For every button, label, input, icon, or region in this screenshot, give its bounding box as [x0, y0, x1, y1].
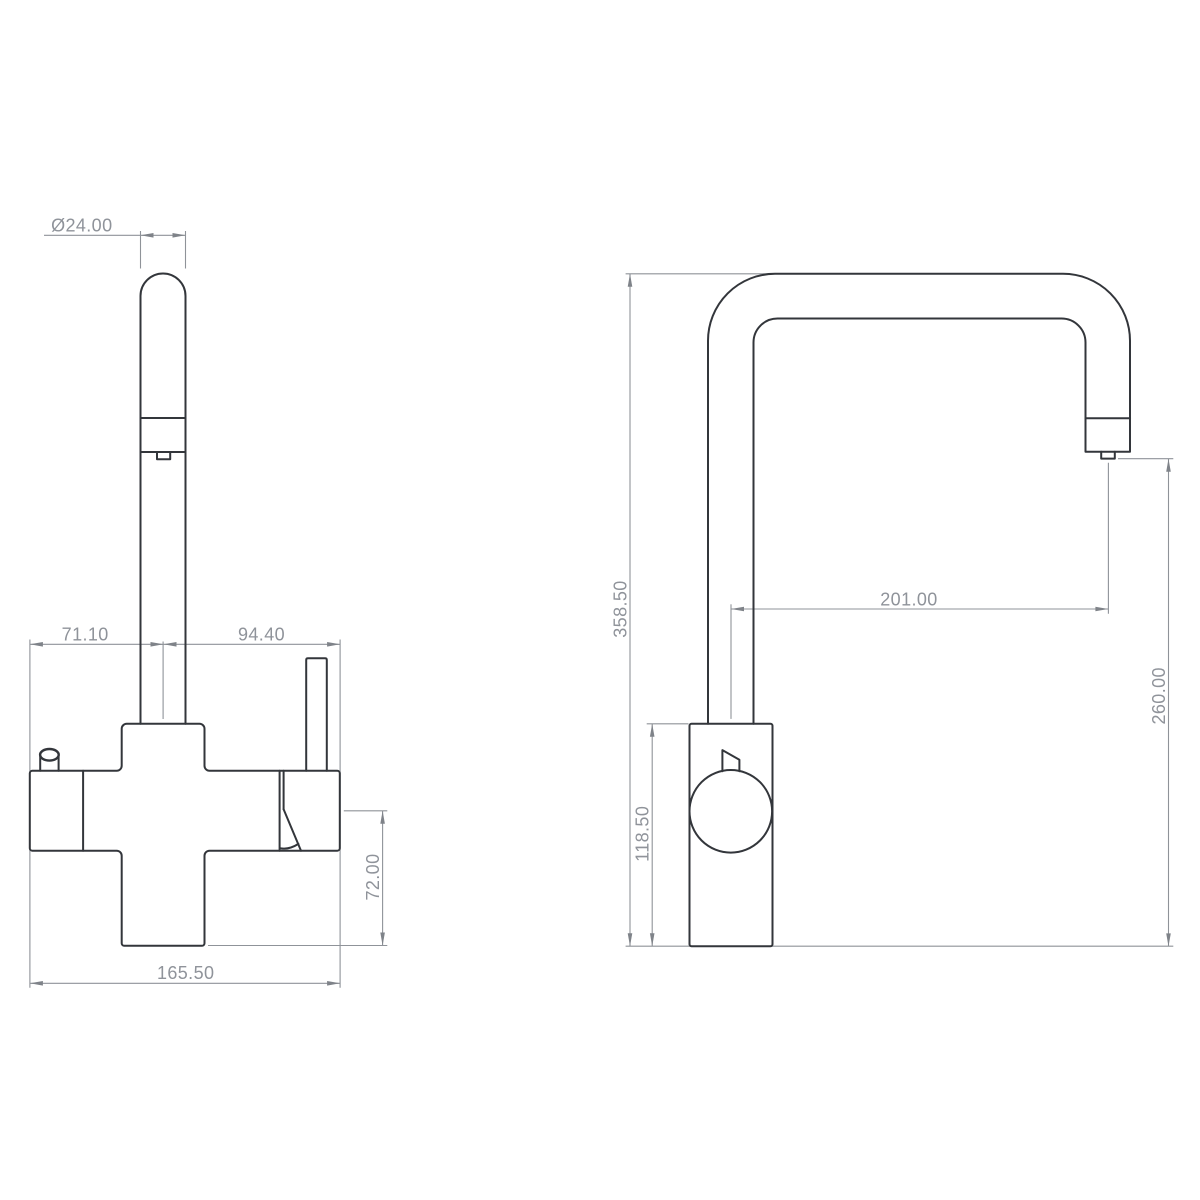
svg-text:165.50: 165.50	[157, 963, 214, 983]
svg-text:71.10: 71.10	[62, 625, 109, 645]
svg-text:118.50: 118.50	[633, 806, 653, 862]
svg-text:201.00: 201.00	[880, 589, 937, 609]
svg-text:358.50: 358.50	[611, 580, 631, 637]
svg-text:94.40: 94.40	[238, 625, 285, 645]
svg-text:260.00: 260.00	[1149, 667, 1169, 724]
svg-text:Ø24.00: Ø24.00	[51, 215, 112, 235]
svg-text:72.00: 72.00	[363, 853, 383, 900]
